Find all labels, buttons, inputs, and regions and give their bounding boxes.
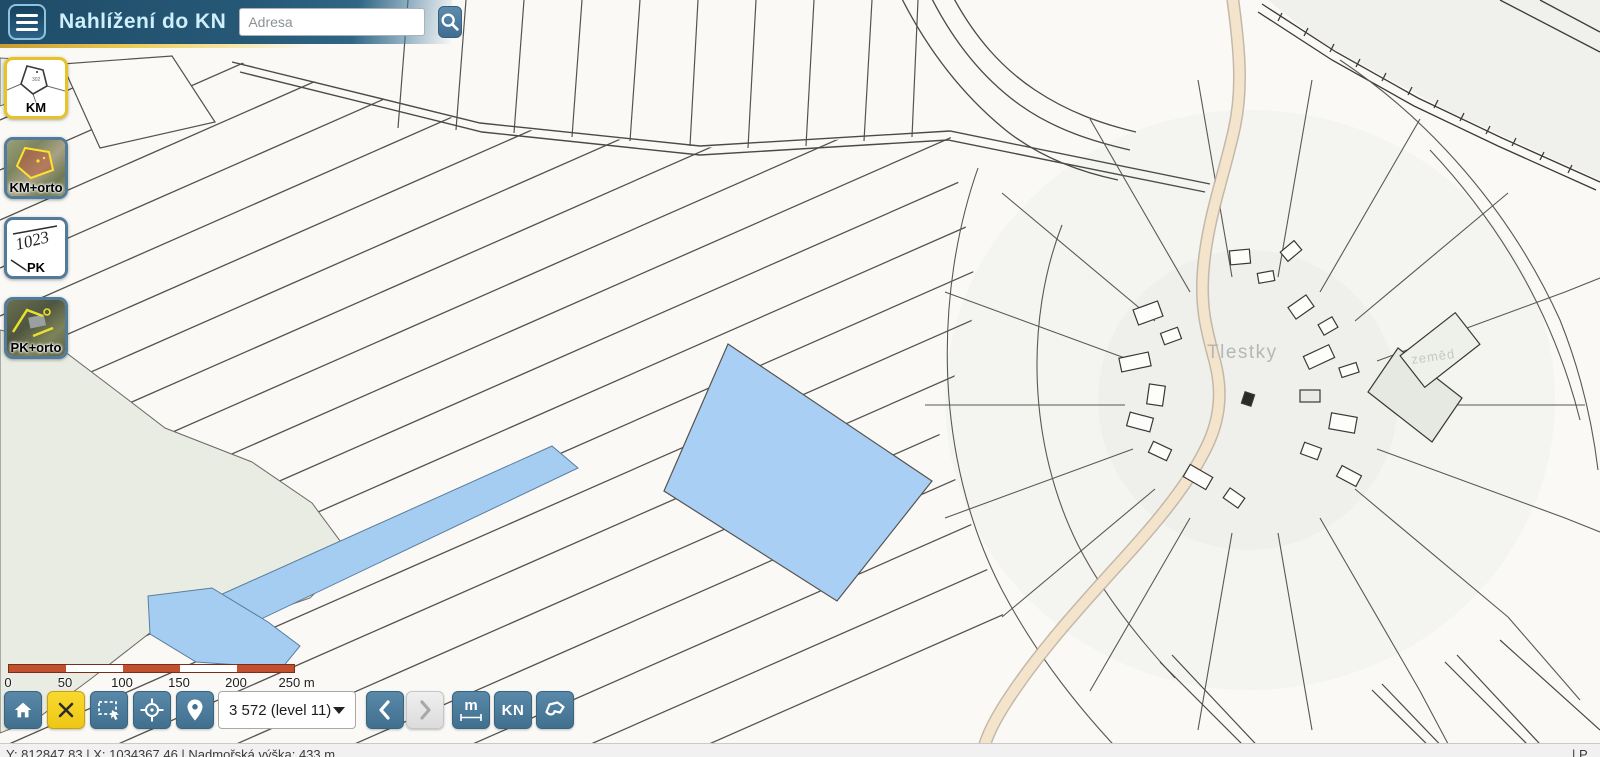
pin-icon xyxy=(184,698,206,722)
svg-text:1023: 1023 xyxy=(13,227,51,254)
history-forward-button[interactable] xyxy=(406,691,444,729)
status-bar: Y: 812847.83 | X: 1034367.46 | Nadmořská… xyxy=(0,743,1600,757)
chevron-down-icon xyxy=(333,707,345,714)
history-back-button[interactable] xyxy=(366,691,404,729)
scale-tick: 50 xyxy=(58,675,72,690)
scale-bar-ticks: 0 50 100 150 200 250 m xyxy=(8,675,295,691)
scale-tick: 0 xyxy=(4,675,11,690)
kn-viewer-app: Tlestky zeměd Nahlížení do KN 302 xyxy=(0,0,1600,757)
layer-pk-button[interactable]: 1023 PK xyxy=(4,217,68,279)
locate-icon xyxy=(139,697,165,723)
layer-pk-label: PK xyxy=(7,260,65,275)
back-icon xyxy=(374,697,396,723)
header-bar: Nahlížení do KN xyxy=(0,0,452,44)
draw-polygon-button[interactable] xyxy=(536,691,574,729)
close-icon xyxy=(57,701,75,719)
layer-pk-orto-label: PK+orto xyxy=(7,340,65,355)
zoom-level-value: 3 572 (level 11) xyxy=(229,702,331,719)
village-name-label: Tlestky xyxy=(1207,342,1278,363)
scale-bar: 0 50 100 150 200 250 m xyxy=(8,664,295,691)
hamburger-icon xyxy=(16,14,38,17)
layer-km-orto-button[interactable]: KM+orto xyxy=(4,137,68,199)
app-title: Nahlížení do KN xyxy=(59,10,226,34)
layer-km-orto-label: KM+orto xyxy=(7,180,65,195)
measure-icon: m xyxy=(459,698,483,722)
zoom-level-select[interactable]: 3 572 (level 11) xyxy=(218,691,356,729)
scale-tick: 200 xyxy=(225,675,247,690)
layer-switcher: 302 KM KM+orto 1023 xyxy=(4,57,68,377)
layer-pk-orto-button[interactable]: PK+orto xyxy=(4,297,68,359)
search-icon xyxy=(439,11,461,33)
select-area-button[interactable] xyxy=(90,691,128,729)
draw-polygon-icon xyxy=(542,698,568,722)
locate-gps-button[interactable] xyxy=(133,691,171,729)
measure-button[interactable]: m xyxy=(452,691,490,729)
home-icon xyxy=(12,699,34,721)
layer-km-label: KM xyxy=(7,100,65,115)
scale-tick: 150 xyxy=(168,675,190,690)
drop-pin-button[interactable] xyxy=(176,691,214,729)
search-button[interactable] xyxy=(438,6,462,38)
cancel-selection-button[interactable] xyxy=(47,691,85,729)
forward-icon xyxy=(414,697,436,723)
scale-bar-segments xyxy=(8,664,295,673)
layer-km-button[interactable]: 302 KM xyxy=(4,57,68,119)
address-search-input[interactable] xyxy=(239,8,425,36)
scale-tick: 100 xyxy=(111,675,133,690)
coordinates-readout: Y: 812847.83 | X: 1034367.46 | Nadmořská… xyxy=(6,747,335,757)
home-button[interactable] xyxy=(4,691,42,729)
select-area-icon xyxy=(96,698,122,722)
svg-text:302: 302 xyxy=(32,77,41,83)
scale-tick: 250 m xyxy=(279,675,315,690)
status-bar-right: | P xyxy=(1572,747,1588,757)
map-canvas[interactable]: Tlestky zeměd xyxy=(0,0,1600,757)
menu-button[interactable] xyxy=(8,4,46,40)
kn-icon: KN xyxy=(502,702,525,719)
kn-info-button[interactable]: KN xyxy=(494,691,532,729)
